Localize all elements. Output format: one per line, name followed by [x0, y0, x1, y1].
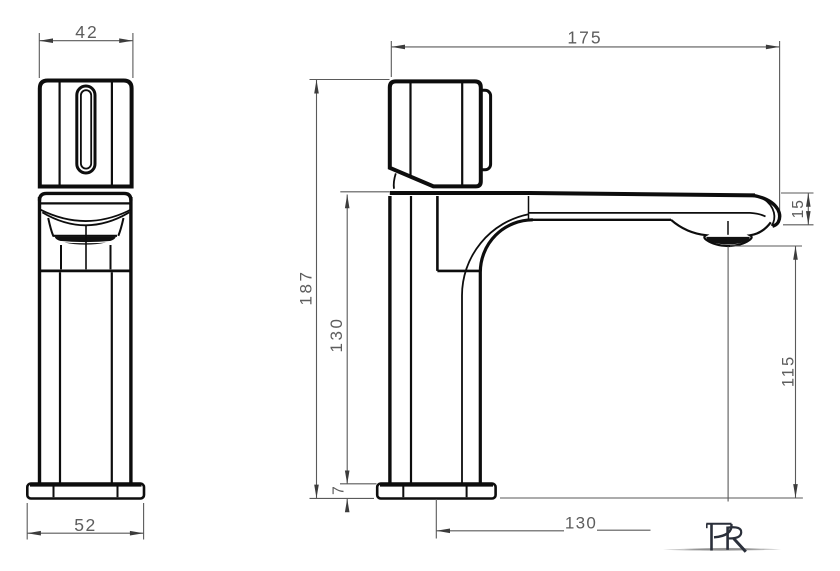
- svg-text:15: 15: [790, 199, 807, 218]
- svg-text:42: 42: [75, 22, 98, 42]
- svg-text:175: 175: [567, 28, 602, 48]
- svg-text:187: 187: [297, 270, 316, 306]
- svg-text:130: 130: [327, 317, 346, 353]
- svg-text:7: 7: [331, 486, 348, 495]
- svg-text:130: 130: [565, 514, 597, 533]
- svg-text:115: 115: [780, 355, 798, 387]
- svg-text:52: 52: [74, 515, 96, 535]
